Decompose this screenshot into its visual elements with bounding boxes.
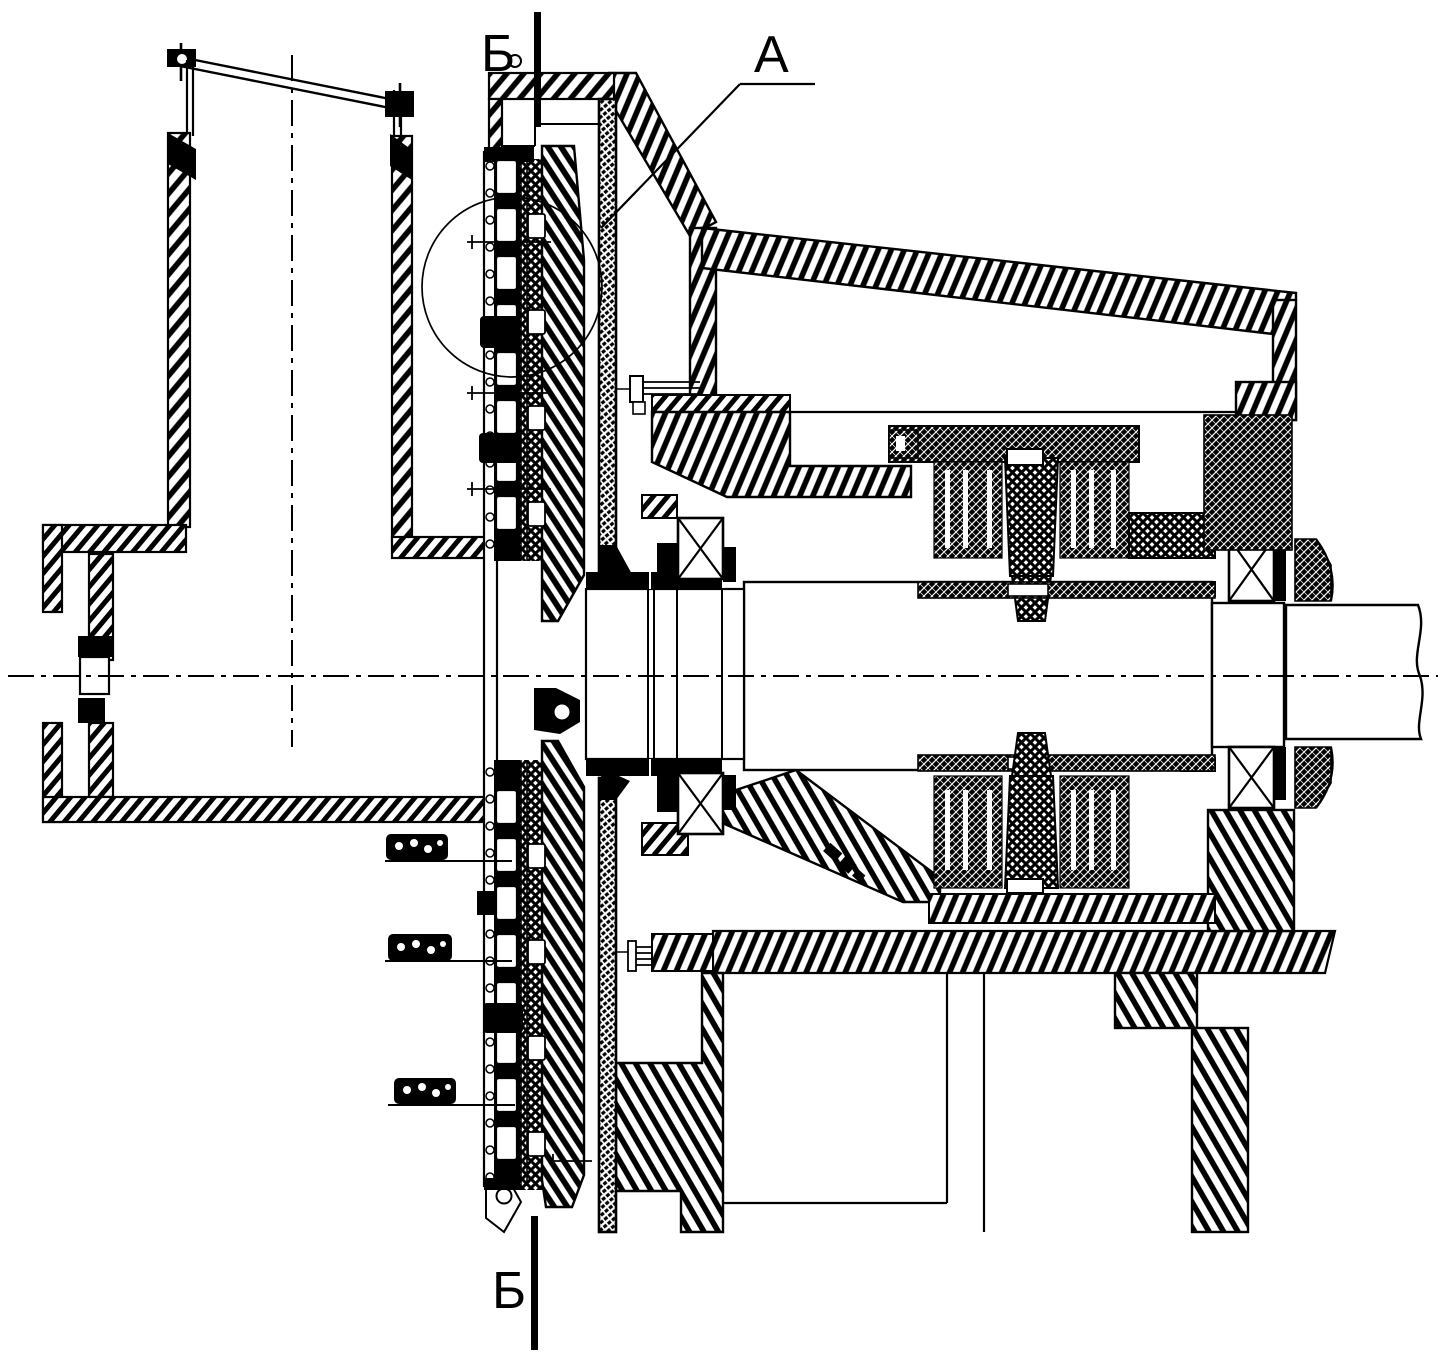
svg-text:Б: Б: [492, 1262, 526, 1320]
svg-text:А: А: [754, 26, 789, 84]
svg-text:Б: Б: [481, 25, 515, 83]
